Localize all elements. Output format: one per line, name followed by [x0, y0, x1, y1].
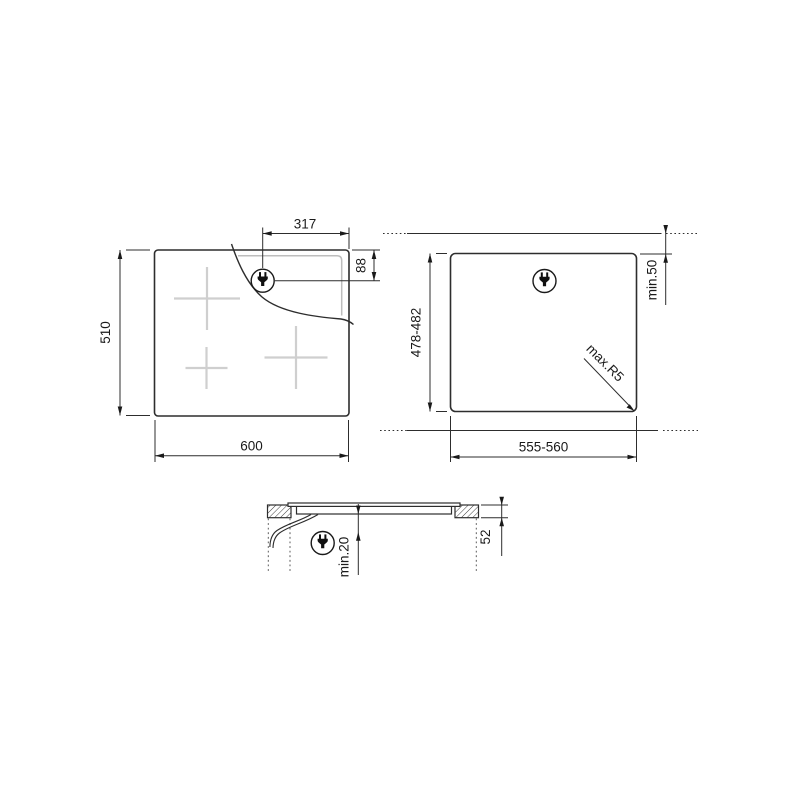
dim-label-600: 600: [240, 439, 263, 454]
dim-hob-width: 600: [155, 420, 349, 462]
dim-label-min20: min.20: [337, 537, 352, 578]
dim-rear-clearance: min.50: [640, 225, 672, 305]
dim-plug-offset-y: 88: [352, 250, 380, 281]
hob-top-view: 317 88 510 600: [98, 217, 380, 463]
drawing-svg: 317 88 510 600: [0, 0, 800, 800]
dim-label-317: 317: [294, 217, 317, 232]
dim-label-min50: min.50: [645, 260, 660, 301]
hob-glass-section: [288, 503, 460, 506]
cutout-top-view: 478-482 555-560 min.50 max.R5: [380, 225, 698, 462]
hob-outline: [155, 250, 350, 416]
dim-label-555-560: 555-560: [519, 440, 569, 455]
power-plug-icon: [311, 532, 334, 555]
dim-cutout-depth: 478-482: [409, 254, 448, 412]
dim-label-88: 88: [354, 258, 369, 273]
dim-label-52: 52: [478, 529, 493, 544]
dim-hob-depth: 510: [98, 250, 150, 416]
side-section-view: min.20 52: [268, 497, 509, 578]
installation-drawing: 317 88 510 600: [0, 0, 800, 800]
dim-label-510: 510: [98, 321, 113, 344]
power-plug-icon: [251, 269, 274, 292]
power-plug-icon: [533, 270, 556, 293]
dim-hob-height: 52: [478, 497, 508, 556]
dim-bottom-clearance: min.20: [337, 504, 361, 577]
dim-plug-offset-x: 317: [263, 217, 349, 236]
dim-label-478-482: 478-482: [409, 308, 424, 358]
dim-cutout-width: 555-560: [451, 416, 637, 462]
hob-body-section: [297, 506, 452, 514]
